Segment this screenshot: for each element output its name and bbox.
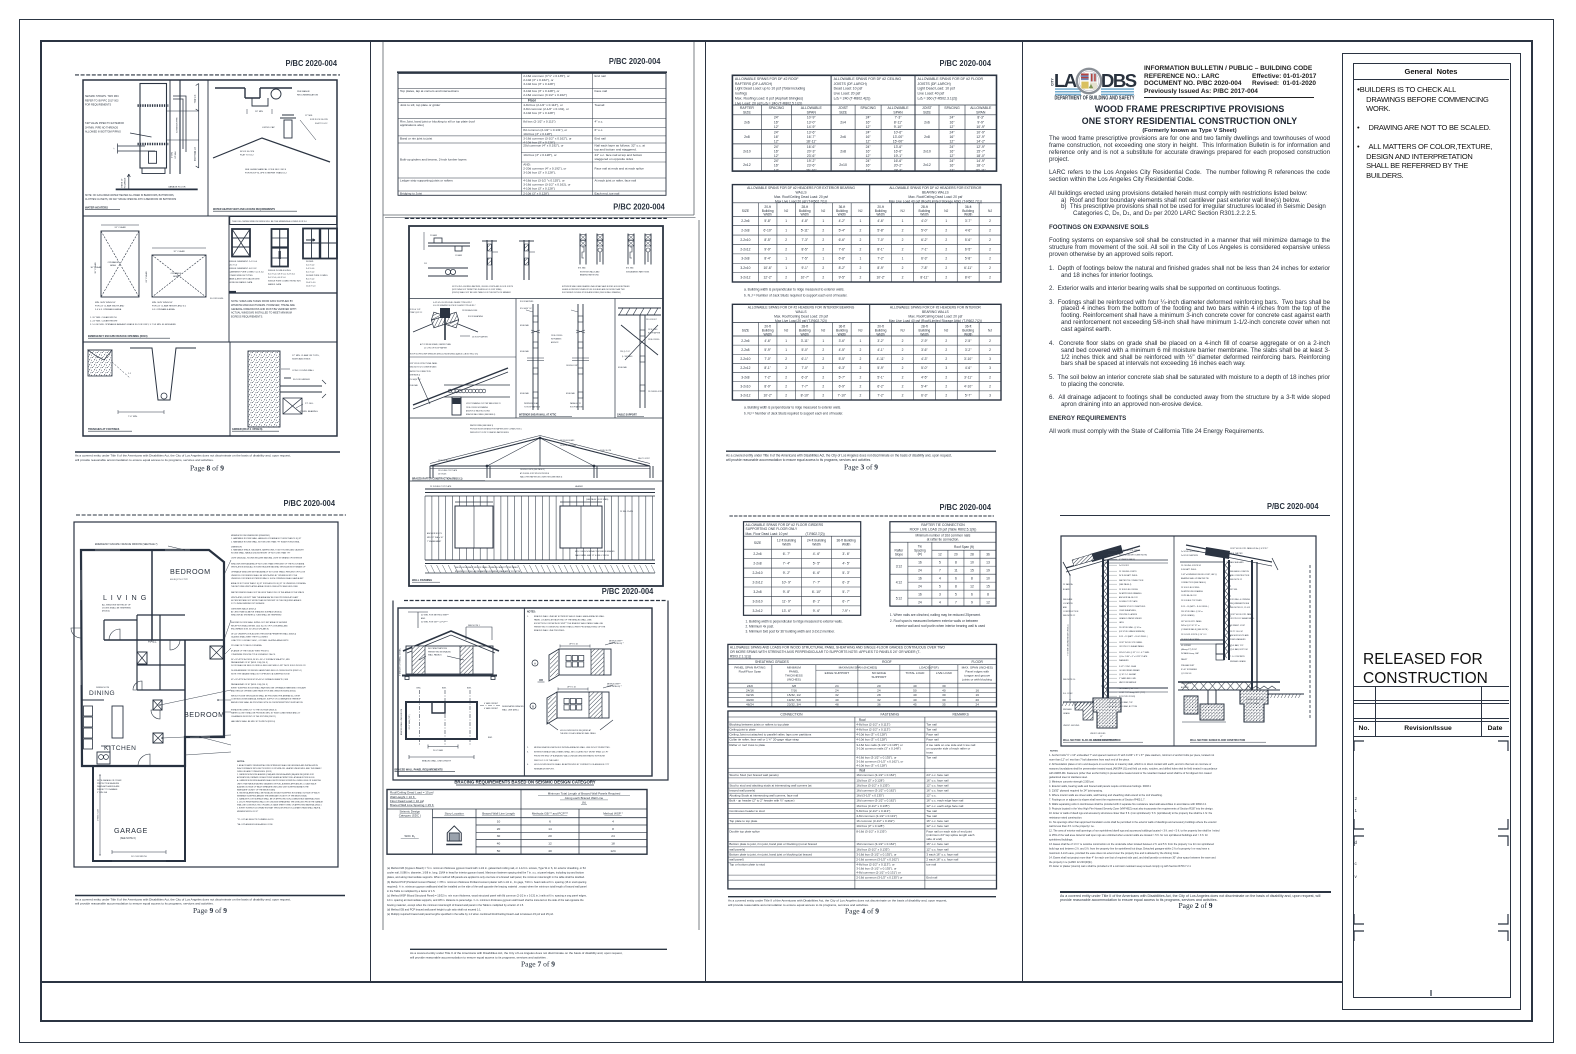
svg-text:14: 14 <box>548 827 552 831</box>
svg-text:GIRDER (R317.1 / R502.6): GIRDER (R317.1 / R502.6) <box>232 428 262 431</box>
svg-text:CLIPS EA. BLOCK: CLIPS EA. BLOCK <box>1181 594 1197 597</box>
svg-text:2: 2 <box>945 384 947 388</box>
svg-text:2X N. RAFTER: 2X N. RAFTER <box>1230 552 1243 555</box>
svg-text:5'-8": 5'-8" <box>965 257 972 261</box>
svg-text:28" MIN: 28" MIN <box>255 111 263 113</box>
svg-text:2.: 2. <box>527 747 529 749</box>
svg-text:8: 8 <box>955 584 957 588</box>
svg-text:5'-11": 5'-11" <box>801 229 810 233</box>
svg-text:(DF STUD GRADE MINIMUM): (DF STUD GRADE MINIMUM) <box>1119 630 1145 633</box>
svg-text:2X RIDGE BOARD: 2X RIDGE BOARD <box>560 439 575 442</box>
svg-text:MANUF. DATA: MANUF. DATA <box>268 283 282 286</box>
svg-text:28: 28 <box>970 553 974 557</box>
svg-text:6'-2": 6'-2" <box>921 238 928 242</box>
svg-text:7'-1": 7'-1" <box>921 247 928 251</box>
svg-text:UPLIFT FRAMING CLIP PER TABLE: UPLIFT FRAMING CLIP PER TABLE R802.11 <box>466 402 501 405</box>
svg-text:12": 12" <box>774 168 780 172</box>
svg-text:20'-11": 20'-11" <box>976 168 987 172</box>
svg-text:SEE EAVE: SEE EAVE <box>1063 598 1073 601</box>
svg-text:7: 7 <box>939 568 941 572</box>
svg-text:NOTES:: NOTES: <box>237 761 245 763</box>
svg-text:to 25% of the wall area. Exte: to 25% of the wall area. Exterior wall o… <box>1049 833 1208 837</box>
svg-text:v: v <box>1355 874 1358 879</box>
svg-text:Braced Wall Line Length: Braced Wall Line Length <box>482 812 515 816</box>
svg-text:2X CEILING JOIST: 2X CEILING JOIST <box>648 391 663 393</box>
svg-text:4' MAX OFFSET: 4' MAX OFFSET <box>484 707 499 710</box>
svg-text:ROOF RAFTER: ROOF RAFTER <box>648 331 661 334</box>
svg-text:PASSAGEWAY OF 30" (M301.1.30: PASSAGEWAY OF 30" (M301.1.30) (30L F) <box>231 683 268 686</box>
svg-text:(in): (in) <box>918 552 923 556</box>
svg-text:Toe nail: Toe nail <box>926 728 937 732</box>
svg-text:2X STUDS: 2X STUDS <box>438 473 447 475</box>
svg-text:24" CLEAR: 24" CLEAR <box>145 271 148 283</box>
svg-text:PASSAGEWAY OF 30" (M301 1.30: PASSAGEWAY OF 30" (M301 1.30) (30L F) <box>231 661 268 664</box>
svg-text:16": 16" <box>774 164 780 168</box>
svg-text:16d common (3-1/2" x 0.162"): 16d common (3-1/2" x 0.162") <box>856 773 896 777</box>
svg-text:PER MANUF: PER MANUF <box>297 90 311 93</box>
svg-text:BTS. MAX: BTS. MAX <box>578 267 586 270</box>
svg-text:NOTES:: NOTES: <box>1050 751 1059 753</box>
svg-text:b. N.J = Number of Jack St: b. N.J = Number of Jack Studs required t… <box>744 294 848 298</box>
svg-text:plates, and along intermediate: plates, and along intermediate supports.… <box>387 875 585 879</box>
svg-text:20: 20 <box>954 553 958 557</box>
svg-text:R503.2.1.1(1)): R503.2.1.1(1)) <box>730 654 751 658</box>
svg-text:PROTECTIVE MEASURE: PROTECTIVE MEASURE <box>97 782 120 785</box>
svg-text:10'-2": 10'-2" <box>876 276 885 280</box>
svg-text:9' (HEIGHT OF PANEL) 10 MAX.: 9' (HEIGHT OF PANEL) 10 MAX. <box>399 648 402 676</box>
svg-text:Toe nail: Toe nail <box>926 809 937 813</box>
svg-text:EDGE NAIL: EDGE NAIL <box>520 392 529 395</box>
svg-text:P/BC 2020-004: P/BC 2020-004 <box>940 502 992 512</box>
svg-text:(20 X 5.0: (20 X 5.0 <box>229 265 238 267</box>
svg-text:NJ: NJ <box>944 328 948 332</box>
svg-text:NJ: NJ <box>988 328 992 332</box>
svg-text:2: 2 <box>860 375 862 379</box>
svg-text:8'-1": 8'-1" <box>877 247 884 251</box>
svg-text:ANCHOR BOLTS: ANCHOR BOLTS <box>427 532 443 535</box>
svg-text:13'- 6": 13'- 6" <box>782 609 792 613</box>
svg-text:2: 2 <box>902 276 904 280</box>
svg-text:(2)#4 BAR, TOP: (2)#4 BAR, TOP <box>1119 701 1133 704</box>
svg-text:15/32, 1/2: 15/32, 1/2 <box>787 693 801 697</box>
svg-text:NJ: NJ <box>784 328 788 332</box>
svg-text:WALL PANEL MAX 12" & MIN. 4' F: WALL PANEL MAX 12" & MIN. 4' FROM <box>575 554 609 557</box>
svg-text:P/BC 2020-004: P/BC 2020-004 <box>284 498 336 508</box>
svg-text:ALLOWED IN BOTTOM PIPING: ALLOWED IN BOTTOM PIPING <box>85 131 121 134</box>
svg-text:1. Building width is perpen: 1. Building width is perpendicular to ri… <box>746 619 843 623</box>
svg-text:2: 2 <box>860 366 862 370</box>
svg-text:EXHAUSTED DIRECTLY TO THE OUT: EXHAUSTED DIRECTLY TO THE OUTSIDE (R303.… <box>231 709 277 712</box>
svg-text:6'- 6": 6'- 6" <box>813 571 821 575</box>
svg-text:CEILING JOISTS (SEE PAGE 3): CEILING JOISTS (SEE PAGE 3) <box>520 468 545 471</box>
svg-text:required). ¾ in. minimum gyps: required). ¾ in. minimum gypsum wallboar… <box>387 884 587 888</box>
svg-text:2X SLOPED: 2X SLOPED <box>648 329 658 331</box>
svg-text:3-0 X 5-0, 3-8 X 5-0, 3-4 X 5: 3-0 X 5-0, 3-8 X 5-0, 3-4 X 5-0 <box>268 274 296 276</box>
svg-text:Continuous header to stud: Continuous header to stud <box>729 809 765 813</box>
svg-text:SIZE: SIZE <box>839 111 847 115</box>
svg-text:ALLOWABLE SPANS FOR DF #2 HEAD: ALLOWABLE SPANS FOR DF #2 HEADERS FOR EX… <box>889 186 982 190</box>
svg-text:2: 2 <box>785 357 787 361</box>
svg-text:with AWPA M4. Fasteners (othe: with AWPA M4. Fasteners (other than anch… <box>1049 771 1212 775</box>
svg-text:40 AND 60 PERCENT WHEN STUDS: 40 AND 60 PERCENT WHEN STUDS DOUBLED AND… <box>562 288 625 291</box>
svg-text:2: 2 <box>822 229 824 233</box>
svg-text:IN ACCORDANCE WITH SECTION R31: IN ACCORDANCE WITH SECTION R313.3 OR NFP… <box>237 767 322 770</box>
svg-text:2: 2 <box>822 266 824 270</box>
svg-text:4'-6": 4'-6" <box>965 366 972 370</box>
svg-text:1: 1 <box>860 339 862 343</box>
svg-text:Ledger strip supporting joists: Ledger strip supporting joists or rafter… <box>400 179 453 183</box>
svg-text:ENSURE FOOTING LAW REGARDING F: ENSURE FOOTING LAW REGARDING FORMING STA… <box>455 570 521 573</box>
svg-text:14. Eaves shall not project mo: 14. Eaves shall not project more than 4"… <box>1049 855 1216 859</box>
svg-text:DWELLING AND TOWNHOUSES. (R313: DWELLING AND TOWNHOUSES. (R313) <box>237 770 272 773</box>
svg-text:(b) Method PCP (Portland Ceme: (b) Method PCP (Portland Cement Plaster)… <box>387 880 587 884</box>
svg-text:1: 1 <box>822 257 824 261</box>
svg-text:cooler nail, 0.086 in. diamete: cooler nail, 0.086 in. diameter, 1-5/8 i… <box>387 871 584 875</box>
svg-text:4' MAX OFFSET: 4' MAX OFFSET <box>484 702 499 705</box>
svg-text:truss: truss <box>926 751 933 755</box>
svg-text:2-16d common (3 1/2" x 0.162"): 2-16d common (3 1/2" x 0.162") <box>523 93 567 97</box>
svg-text:16" o.c. face nail: 16" o.c. face nail <box>926 842 948 846</box>
svg-text:(SEE PAGE 4): (SEE PAGE 4) <box>1119 583 1132 586</box>
svg-text:ROOF RAFTERS: ROOF RAFTERS <box>570 405 584 408</box>
svg-text:FLAT TO 6:12: FLAT TO 6:12 <box>315 122 328 125</box>
svg-text:INTERIOR SHEAR WALL AT ATTIC: INTERIOR SHEAR WALL AT ATTIC <box>519 414 557 417</box>
svg-text:40 PERCENT AND NOT MORE THAN 5: 40 PERCENT AND NOT MORE THAN 50 PERCENT … <box>231 599 302 602</box>
svg-text:24": 24" <box>866 131 872 135</box>
svg-text:SLIDER:: SLIDER: <box>306 261 314 263</box>
svg-text:24: 24 <box>877 688 881 692</box>
svg-text:24" CLEAR: 24" CLEAR <box>114 226 126 229</box>
svg-text:2-10d (3" x 0.128"): 2-10d (3" x 0.128") <box>523 192 549 196</box>
svg-text:W/8d @(6"/6"/12") COMMON NAILS: W/8d @(6"/6"/12") COMMON NAILS <box>409 365 437 368</box>
svg-text:ROOF: ROOF <box>882 660 892 664</box>
svg-text:(T-R602.7(2)): (T-R602.7(2)) <box>806 532 825 536</box>
svg-text:23/32, 3/4: 23/32, 3/4 <box>787 703 801 707</box>
svg-text:3-10d box (3" x 0.128"): 3-10d box (3" x 0.128") <box>523 111 555 115</box>
svg-text:SINGLE CASEMENT: 4-8 X 62: SINGLE CASEMENT: 4-8 X 62 <box>229 267 257 270</box>
svg-text:3-2x8: 3-2x8 <box>741 257 749 261</box>
svg-text:2X SOLID BLOCKING: 2X SOLID BLOCKING <box>1119 589 1138 591</box>
svg-text:2: 2 <box>989 276 991 280</box>
svg-text:3-2x10: 3-2x10 <box>740 266 750 270</box>
svg-text:NJ: NJ <box>901 328 905 332</box>
svg-text:BRACED WALL LINES AT EXTERIOR: BRACED WALL LINES AT EXTERIOR WALLS SHAL… <box>534 615 605 618</box>
svg-text:d: d <box>1355 840 1358 845</box>
svg-text:9'-10": 9'-10" <box>894 125 903 129</box>
svg-text:2: 2 <box>945 229 947 233</box>
svg-text:wall is less than 3 ft. to th: wall is less than 3 ft. to the property … <box>1049 824 1095 828</box>
svg-text:Face nail at ends and at each: Face nail at ends and at each splice <box>595 167 645 171</box>
svg-text:2: 2 <box>945 357 947 361</box>
svg-text:3-2x12: 3-2x12 <box>740 276 750 280</box>
svg-text:20d common (4" x 0.192"), or: 20d common (4" x 0.192"), or <box>523 144 563 148</box>
svg-text:PERPENDICULAR: PERPENDICULAR <box>524 402 539 405</box>
svg-text:FINISHED: FINISHED <box>1063 709 1072 711</box>
svg-text:7 MIN. SLOPE: 7 MIN. SLOPE <box>600 450 612 452</box>
svg-text:Max Live Load 20 psf (T-R602.: Max Live Load 20 psf (T-R602.7(2)) <box>775 319 827 323</box>
svg-text:7" EMBEDMENT: 7" EMBEDMENT <box>427 541 442 543</box>
svg-text:ROOF&#160;SHTG (SEE NOTE): ROOF&#160;SHTG (SEE NOTE) <box>1119 555 1147 557</box>
svg-text:6'- 3": 6'- 3" <box>842 581 850 585</box>
svg-text:16 common (3-1/2" x 0.162"): 16 common (3-1/2" x 0.162") <box>856 819 894 823</box>
svg-text:7'-6": 7'-6" <box>839 247 846 251</box>
svg-text:L/Δ = 240: L/Δ = 240 (T-R802.4(2)) <box>834 97 871 101</box>
svg-text:(ft): (ft) <box>582 800 586 804</box>
svg-text:12" o.c.: 12" o.c. <box>926 794 936 798</box>
svg-text:4-10d box (3" x 0.128"): 4-10d box (3" x 0.128") <box>856 738 887 742</box>
svg-text:24: 24 <box>918 568 922 572</box>
svg-text:32: 32 <box>877 698 881 702</box>
svg-text:SPAN: SPAN <box>893 111 903 115</box>
svg-text:Roof/Floor Span: Roof/Floor Span <box>739 670 762 674</box>
svg-text:PERMITTED IN BRACED: PERMITTED IN BRACED <box>428 650 452 653</box>
svg-text:W/ POST BASE: W/ POST BASE <box>1246 702 1260 705</box>
svg-text:9'- 6": 9'- 6" <box>813 609 821 613</box>
svg-text:OPERABLE WINDOWS WITH AN AREA: OPERABLE WINDOWS WITH AN AREA OF NOT LES… <box>231 571 306 574</box>
svg-text:Width: Width <box>842 543 851 547</box>
svg-text:RAFTERS (DF-LARCH): RAFTERS (DF-LARCH) <box>735 82 772 86</box>
svg-text:KITCHEN: KITCHEN <box>104 745 136 752</box>
svg-text:40' MIN. FOR METHOD WSP**: 40' MIN. FOR METHOD WSP** <box>421 615 449 617</box>
svg-text:Live Load: 20 psf: Live Load: 20 psf <box>834 92 861 96</box>
svg-text:7'-2": 7'-2" <box>764 375 771 379</box>
svg-text:16": 16" <box>866 149 872 153</box>
svg-text:16" o.c. each edge face nail: 16" o.c. each edge face nail <box>926 799 963 803</box>
svg-text:30"x 30" ATTIC ACCESS; 36 30": 30"x 30" ATTIC ACCESS; 36 30"x 30"x 5' F… <box>231 658 290 661</box>
svg-text:50' MIN. FOR GB*** & PCP***: 50' MIN. FOR GB*** & PCP*** <box>421 622 448 624</box>
svg-text:Along each Braced Wall Line: Along each Braced Wall Line <box>565 796 604 800</box>
svg-text:Width: Width <box>763 332 772 336</box>
svg-text:23'-6": 23'-6" <box>807 164 816 168</box>
svg-text:12" o.c. face nail: 12" o.c. face nail <box>926 847 948 851</box>
svg-text:40: 40 <box>913 684 917 688</box>
svg-text:3'-6": 3'-6" <box>839 339 846 343</box>
svg-text:Toe nail: Toe nail <box>926 814 937 818</box>
svg-text:24: 24 <box>918 584 922 588</box>
svg-text:R-13 + 13 (BATT + R-GO INSUL.): R-13 + 13 (BATT + R-GO INSUL.) <box>1119 635 1148 638</box>
svg-text:16" o.c. face nail: 16" o.c. face nail <box>926 789 948 793</box>
svg-text:16: 16 <box>918 560 922 564</box>
svg-text:2-2x8: 2-2x8 <box>741 229 749 233</box>
svg-text:6'-6": 6'-6" <box>839 238 846 242</box>
svg-text:CONT. TOP &amp; BOT. (TYP): CONT. TOP &amp; BOT. (TYP) <box>1119 692 1146 694</box>
svg-text:18'-11": 18'-11" <box>806 140 817 144</box>
svg-text:UNDIST. GROUND: UNDIST. GROUND <box>1090 733 1106 735</box>
svg-text:BTS. MAX: BTS. MAX <box>626 267 634 270</box>
svg-text:24": 24" <box>950 159 956 163</box>
svg-text:Light Dead Load: up to 10 psf: Light Dead Load: up to 10 psf (Total inc… <box>735 87 805 91</box>
svg-text:on opposite side of each rafte: on opposite side of each rafter or <box>926 747 970 751</box>
svg-text:15: 15 <box>970 568 974 572</box>
svg-text:2: 2 <box>945 375 947 379</box>
svg-text:Width: Width <box>876 332 885 336</box>
svg-text:Max. Roof/Ceiling Dead Load: 2: Max. Roof/Ceiling Dead Load: 20 psf <box>908 195 962 199</box>
svg-text:2: 2 <box>785 375 787 379</box>
svg-text:PRE-FAB VENT: PRE-FAB VENT <box>1181 664 1195 667</box>
svg-text:Page 8 of 9: Page 8 of 9 <box>190 464 224 473</box>
svg-text:3-2x12: 3-2x12 <box>752 609 762 613</box>
svg-text:2x ROOF RAFTERS: 2x ROOF RAFTERS <box>1181 554 1199 557</box>
svg-text:LA: LA <box>1054 70 1077 91</box>
svg-text:(2)#4 BAR, TOP: (2)#4 BAR, TOP <box>1230 644 1244 647</box>
svg-text:CONTINUOUS MECHANICAL EXHAUST: CONTINUOUS MECHANICAL EXHAUST, SUPPLY OR… <box>231 698 302 701</box>
svg-text:WALL SECTION: RAISED FLOOR CON: WALL SECTION: RAISED FLOOR CONSTRUCTION <box>1190 739 1246 742</box>
svg-text:3-10d common nails (3" x 0.148: 3-10d common nails (3" x 0.148") <box>856 747 900 751</box>
svg-text:5'-4": 5'-4" <box>921 384 928 388</box>
svg-text:P.T. SILL: P.T. SILL <box>305 403 314 405</box>
svg-text:8. Walls separating units in: 8. Walls separating units in townhouses … <box>1049 802 1207 806</box>
svg-text:7'-5": 7'-5" <box>801 257 808 261</box>
svg-text:24/16: 24/16 <box>746 688 754 692</box>
svg-text:TRENCHES AT FOOTINGS: TRENCHES AT FOOTINGS <box>88 428 120 431</box>
svg-text:2: 2 <box>822 394 824 398</box>
svg-text:NOTCH IN 2-4 BORING RAFTERS,: NOTCH IN 2-4 BORING RAFTERS, CEILING JOI… <box>452 285 514 288</box>
svg-text:METHOD WSP**: METHOD WSP** <box>609 641 623 643</box>
svg-text:B. SMOKE ALARMS SHALL BE INS: B. SMOKE ALARMS SHALL BE INSTALLED IN EA… <box>237 792 320 795</box>
svg-text:RESEARCH REPORT.: RESEARCH REPORT. <box>534 768 555 771</box>
svg-text:3. HABITABLE SPACE, HALLWAYS: 3. HABITABLE SPACE, HALLWAYS, BATHROOMS,… <box>231 549 305 552</box>
svg-text:SPACING: SPACING <box>860 106 876 110</box>
svg-text:16d common (3-1/2" x 0.162"): 16d common (3-1/2" x 0.162") <box>856 789 896 793</box>
svg-text:3 each 16" o.c. face nail: 3 each 16" o.c. face nail <box>926 852 958 856</box>
svg-text:P/BC 2020-004: P/BC 2020-004 <box>613 201 665 211</box>
svg-text:1: 1 <box>822 219 824 223</box>
svg-text:16d common (3-1/2" x 0.162"): 16d common (3-1/2" x 0.162") <box>856 799 896 803</box>
svg-text:End nail: End nail <box>595 137 606 141</box>
svg-text:5: 5 <box>939 560 941 564</box>
svg-text:Width: Width <box>801 213 810 217</box>
svg-text:WHERE STUCCO IS APPLIED: WHERE STUCCO IS APPLIED <box>1119 605 1146 608</box>
svg-text:24: 24 <box>975 703 979 707</box>
svg-text:7: 7 <box>955 600 957 604</box>
svg-text:Width: Width <box>920 213 929 217</box>
svg-text:30: 30 <box>497 834 501 838</box>
svg-text:4'- 6": 4'- 6" <box>813 552 821 556</box>
svg-text:1. When nails are clinched,: 1. When nails are clinched, nailing may … <box>890 613 981 617</box>
svg-text:WALLS: WALLS <box>796 310 808 314</box>
svg-text:SIDES AND ENDS: SIDES AND ENDS <box>292 357 311 360</box>
svg-text:19/32, 5/8: 19/32, 5/8 <box>787 698 801 702</box>
svg-text:18'-1": 18'-1" <box>976 164 985 168</box>
svg-text:13'-0": 13'-0" <box>807 120 816 124</box>
svg-text:DOOR SHALL BE SELF-CLOSING & S: DOOR SHALL BE SELF-CLOSING & SELF-LATCHI… <box>231 664 306 667</box>
svg-text:2: 2 <box>860 276 862 280</box>
svg-text:EDGE NAIL: EDGE NAIL <box>409 384 418 387</box>
svg-text:24": 24" <box>866 159 872 163</box>
svg-text:Stud to stud and abutting stud: Stud to stud and abutting studs at inter… <box>729 783 811 787</box>
svg-text:2x ROOF R: 2x ROOF R <box>1119 565 1130 567</box>
svg-text:Bottom plate to joist, rim joi: Bottom plate to joist, rim joist, band j… <box>729 852 812 856</box>
svg-text:9. Projects located in the V: 9. Projects located in the Very High Fir… <box>1049 806 1214 810</box>
svg-text:(NOTCHING NOT PERMITTED IN MI: (NOTCHING NOT PERMITTED IN MIDDLE 1/3 JO… <box>452 288 502 291</box>
svg-text:22% MAX OF TOTAL FLOOR AREA: 22% MAX OF TOTAL FLOOR AREA <box>231 644 262 647</box>
svg-text:FLAT TO 6:12: FLAT TO 6:12 <box>240 153 254 156</box>
svg-text:9'- 8": 9'- 8" <box>783 590 791 594</box>
svg-text:RAFTER TIE CONNECTION: RAFTER TIE CONNECTION <box>921 523 965 527</box>
svg-text:3:12: 3:12 <box>896 564 903 568</box>
svg-text:1. HABITABLE ROOMS SHALL HAV: 1. HABITABLE ROOMS SHALL HAVE A FLOOR AR… <box>231 537 302 540</box>
svg-text:BRACED WALL LINE LENGTH: BRACED WALL LINE LENGTH <box>400 708 403 735</box>
svg-text:4'-8": 4'-8" <box>801 219 808 223</box>
svg-text:2-16d common (3-1/2" x 0.162"): 2-16d common (3-1/2" x 0.162") <box>856 858 898 862</box>
svg-text:7'-3": 7'-3" <box>895 116 903 120</box>
svg-text:24": 24" <box>774 145 780 149</box>
svg-text:(R502.8) SHALL NOT BE LESS THA: (R502.8) SHALL NOT BE LESS THAN 1/6 OF T… <box>452 291 511 294</box>
svg-text:5'-4": 5'-4" <box>839 229 846 233</box>
svg-text:2: 2 <box>822 238 824 242</box>
svg-text:12" o.c. face nail: 12" o.c. face nail <box>926 824 948 828</box>
svg-text:Toe nail: Toe nail <box>926 756 937 760</box>
svg-text:40: 40 <box>942 688 946 692</box>
svg-text:2: 2 <box>902 366 904 370</box>
svg-text:Wall: Wall <box>859 769 865 773</box>
svg-text:4X RIM/BT. JOIST: 4X RIM/BT. JOIST <box>1230 625 1246 627</box>
svg-text:Page 3 of 9: Page 3 of 9 <box>844 463 878 472</box>
svg-text:3-0 X 5-0, 4-0 X 5-0: 3-0 X 5-0, 4-0 X 5-0 <box>268 277 286 279</box>
svg-text:1: 1 <box>822 339 824 343</box>
svg-text:CONNECTION: CONNECTION <box>780 712 803 716</box>
svg-text:16": 16" <box>950 120 956 124</box>
svg-text:NONE 800 MANUF. DATA: NONE 800 MANUF. DATA <box>229 281 253 284</box>
svg-text:2-2x8: 2-2x8 <box>753 562 761 566</box>
svg-text:2X FASCIA: 2X FASCIA <box>1063 583 1073 586</box>
svg-text:3'-2": 3'-2" <box>965 348 972 352</box>
svg-text:12": 12" <box>866 140 872 144</box>
svg-text:2-2x6: 2-2x6 <box>741 339 749 343</box>
svg-text:9'-5": 9'-5" <box>839 276 846 280</box>
svg-text:12": 12" <box>950 125 956 129</box>
svg-text:3-2x12: 3-2x12 <box>740 394 750 398</box>
svg-text:(2)#4 BAR, BOTTOM: (2)#4 BAR, BOTTOM <box>1119 705 1137 708</box>
svg-text:400 SQ FT & 2 TYP.: 400 SQ FT & 2 TYP. <box>170 579 188 581</box>
svg-text:4: 4 <box>939 600 941 604</box>
svg-text:Category (SDC ): Category (SDC ) <box>399 814 421 818</box>
svg-text:Max. Floor Dead Load: 10 psf: Max. Floor Dead Load: 10 psf <box>746 532 788 536</box>
svg-text:2x10: 2x10 <box>743 149 751 153</box>
svg-text:20'-0" MAX (TYP): 20'-0" MAX (TYP) <box>408 714 411 729</box>
svg-text:8'-4": 8'-4" <box>764 257 771 261</box>
svg-text:ANCHOR BOLTS AND: ANCHOR BOLTS AND <box>1230 634 1249 637</box>
svg-text:ALLOWABLE SPANS FOR DF #2 HEAD: ALLOWABLE SPANS FOR DF #2 HEADERS FOR IN… <box>748 306 855 310</box>
svg-text:BEARING WALLS: BEARING WALLS <box>922 191 950 195</box>
svg-text:36: 36 <box>986 553 990 557</box>
svg-text:Double top plate splice: Double top plate splice <box>729 829 760 833</box>
svg-text:Floor: Floor <box>528 99 537 103</box>
svg-text:applications also): applications also) <box>400 123 424 127</box>
svg-text:RAFTER TIE CONNECTION: RAFTER TIE CONNECTION <box>409 370 431 373</box>
svg-text:5.0 S.F. OPENABLE AREA: 5.0 S.F. OPENABLE AREA <box>95 308 122 311</box>
svg-text:24" o.c. face nail: 24" o.c. face nail <box>926 773 948 777</box>
svg-text:CONSTRUCTION: CONSTRUCTION <box>1063 611 1079 613</box>
svg-text:5/8" WOOD STR. PANEL: 5/8" WOOD STR. PANEL <box>1181 620 1202 623</box>
svg-text:SUBJECT TO DAMAGE: SUBJECT TO DAMAGE <box>97 788 118 791</box>
svg-text:Rafter or roof truss to plate: Rafter or roof truss to plate <box>729 743 765 747</box>
svg-text:16'-6": 16'-6" <box>807 145 816 149</box>
svg-text:10'-7": 10'-7" <box>801 276 810 280</box>
svg-text:2-2x10: 2-2x10 <box>740 238 750 242</box>
svg-text:4: 4 <box>939 576 941 580</box>
svg-text:ALARMS OUTSIDE OF EACH SEPARAT: ALARMS OUTSIDE OF EACH SEPARATE DWELLING… <box>237 785 309 788</box>
svg-text:BEARING PARTITIONS: BEARING PARTITIONS <box>580 273 600 276</box>
svg-text:SUPPORT: SUPPORT <box>871 675 886 679</box>
svg-text:NOTE: SIZES ARE TAKEN FROM DA: NOTE: SIZES ARE TAKEN FROM DATA SUPPLIED… <box>231 300 293 303</box>
svg-text:7'-0": 7'-0" <box>764 357 771 361</box>
svg-text:20'-0" MAX: 20'-0" MAX <box>433 749 444 752</box>
svg-text:7'-8": 7'-8" <box>921 266 928 270</box>
svg-text:2: 2 <box>860 229 862 233</box>
svg-text:3'-7": 3'-7" <box>965 219 972 223</box>
svg-text:As a covered entity under Titl: As a covered entity under Title II of th… <box>726 453 952 457</box>
